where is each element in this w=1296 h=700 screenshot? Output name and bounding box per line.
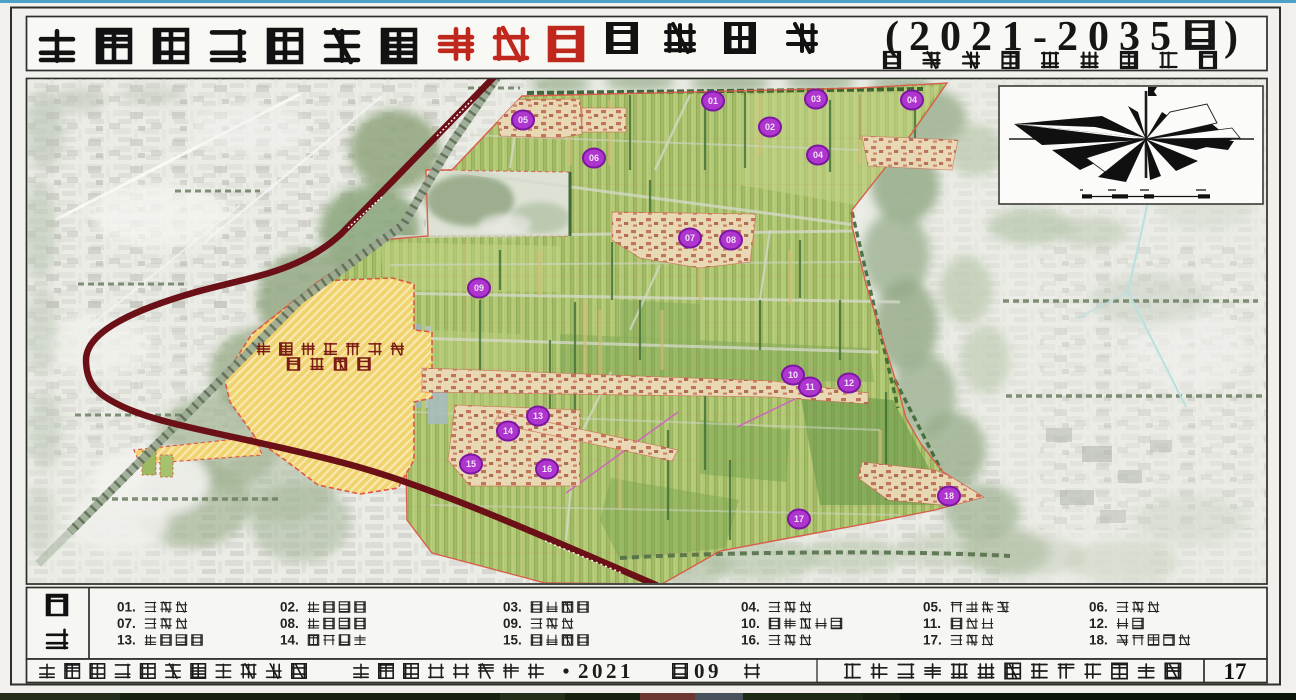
svg-text:17.: 17. bbox=[923, 633, 942, 648]
svg-text:09: 09 bbox=[474, 283, 484, 293]
svg-text:08: 08 bbox=[726, 235, 736, 245]
svg-text:04: 04 bbox=[813, 150, 823, 160]
svg-text:2021: 2021 bbox=[578, 659, 634, 683]
svg-text:17: 17 bbox=[1224, 659, 1247, 684]
svg-text:03.: 03. bbox=[503, 600, 522, 615]
svg-text:12: 12 bbox=[844, 378, 854, 388]
svg-text:04.: 04. bbox=[741, 600, 760, 615]
svg-text:10: 10 bbox=[788, 370, 798, 380]
svg-text:): ) bbox=[1224, 14, 1238, 60]
svg-text:18: 18 bbox=[944, 491, 954, 501]
svg-text:08.: 08. bbox=[280, 616, 299, 631]
svg-text:06: 06 bbox=[589, 153, 599, 163]
svg-text:16: 16 bbox=[542, 464, 552, 474]
svg-text:02: 02 bbox=[765, 122, 775, 132]
svg-text:09.: 09. bbox=[503, 616, 522, 631]
svg-text:05.: 05. bbox=[923, 600, 942, 615]
svg-text:01: 01 bbox=[708, 96, 718, 106]
svg-text:04: 04 bbox=[907, 95, 917, 105]
svg-text:16.: 16. bbox=[741, 633, 760, 648]
svg-text:14: 14 bbox=[503, 426, 513, 436]
svg-text:05: 05 bbox=[518, 115, 528, 125]
svg-text:15.: 15. bbox=[503, 633, 522, 648]
svg-text:06.: 06. bbox=[1089, 600, 1108, 615]
svg-text:11.: 11. bbox=[923, 616, 941, 631]
svg-text:03: 03 bbox=[811, 94, 821, 104]
svg-text:11: 11 bbox=[805, 382, 815, 392]
svg-text:10.: 10. bbox=[741, 616, 760, 631]
svg-text:09: 09 bbox=[694, 659, 722, 683]
svg-text:13.: 13. bbox=[117, 633, 136, 648]
svg-text:02.: 02. bbox=[280, 600, 299, 615]
svg-text:01.: 01. bbox=[117, 600, 136, 615]
svg-text:14.: 14. bbox=[280, 633, 299, 648]
svg-text:07.: 07. bbox=[117, 616, 136, 631]
svg-text:12.: 12. bbox=[1089, 616, 1108, 631]
svg-text:07: 07 bbox=[685, 233, 695, 243]
svg-text:18.: 18. bbox=[1089, 633, 1108, 648]
svg-text:17: 17 bbox=[794, 514, 804, 524]
svg-text:15: 15 bbox=[466, 459, 476, 469]
svg-text:13: 13 bbox=[533, 411, 543, 421]
